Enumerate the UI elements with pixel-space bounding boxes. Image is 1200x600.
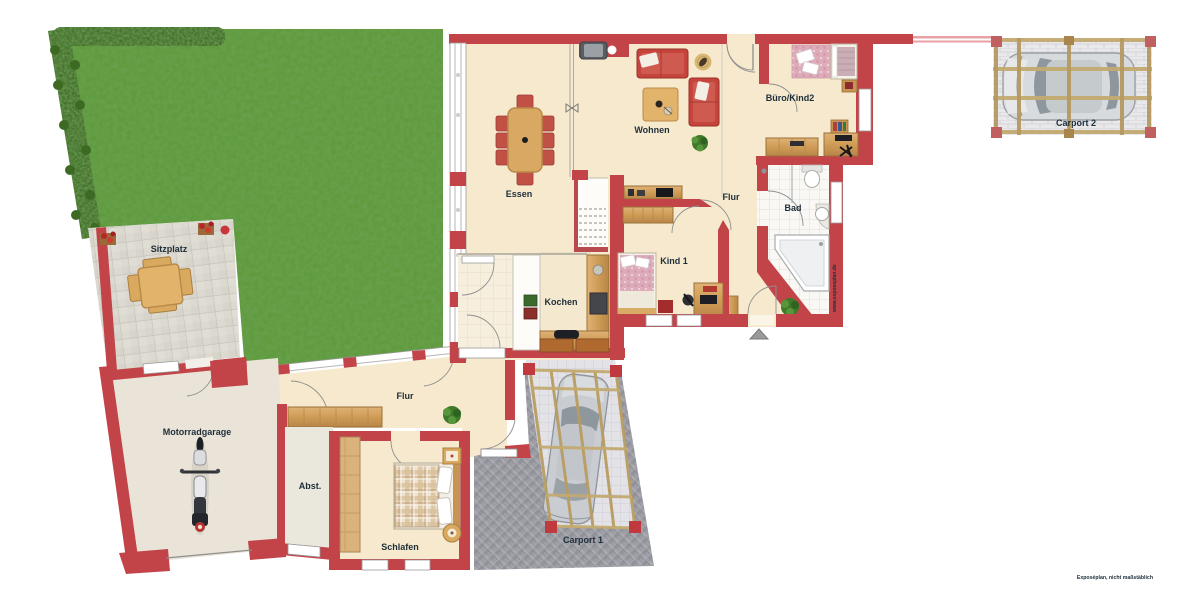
svg-text:Sitzplatz: Sitzplatz — [151, 244, 188, 254]
svg-text:Carport 1: Carport 1 — [563, 535, 603, 545]
svg-text:Kochen: Kochen — [544, 297, 577, 307]
svg-text:www.exposeplan.de: www.exposeplan.de — [832, 264, 838, 313]
svg-text:Flur: Flur — [397, 391, 414, 401]
svg-text:Exposéplan, nicht maßstäblich: Exposéplan, nicht maßstäblich — [1077, 575, 1153, 581]
svg-text:Motorradgarage: Motorradgarage — [163, 427, 232, 437]
svg-text:Abst.: Abst. — [299, 481, 322, 491]
svg-text:Bad: Bad — [784, 203, 801, 213]
svg-text:Büro/Kind2: Büro/Kind2 — [766, 93, 815, 103]
svg-text:Carport 2: Carport 2 — [1056, 118, 1096, 128]
svg-text:Flur: Flur — [723, 192, 740, 202]
svg-text:Wohnen: Wohnen — [634, 125, 669, 135]
svg-text:Kind 1: Kind 1 — [660, 256, 688, 266]
svg-text:Essen: Essen — [506, 189, 533, 199]
svg-text:Schlafen: Schlafen — [381, 542, 419, 552]
